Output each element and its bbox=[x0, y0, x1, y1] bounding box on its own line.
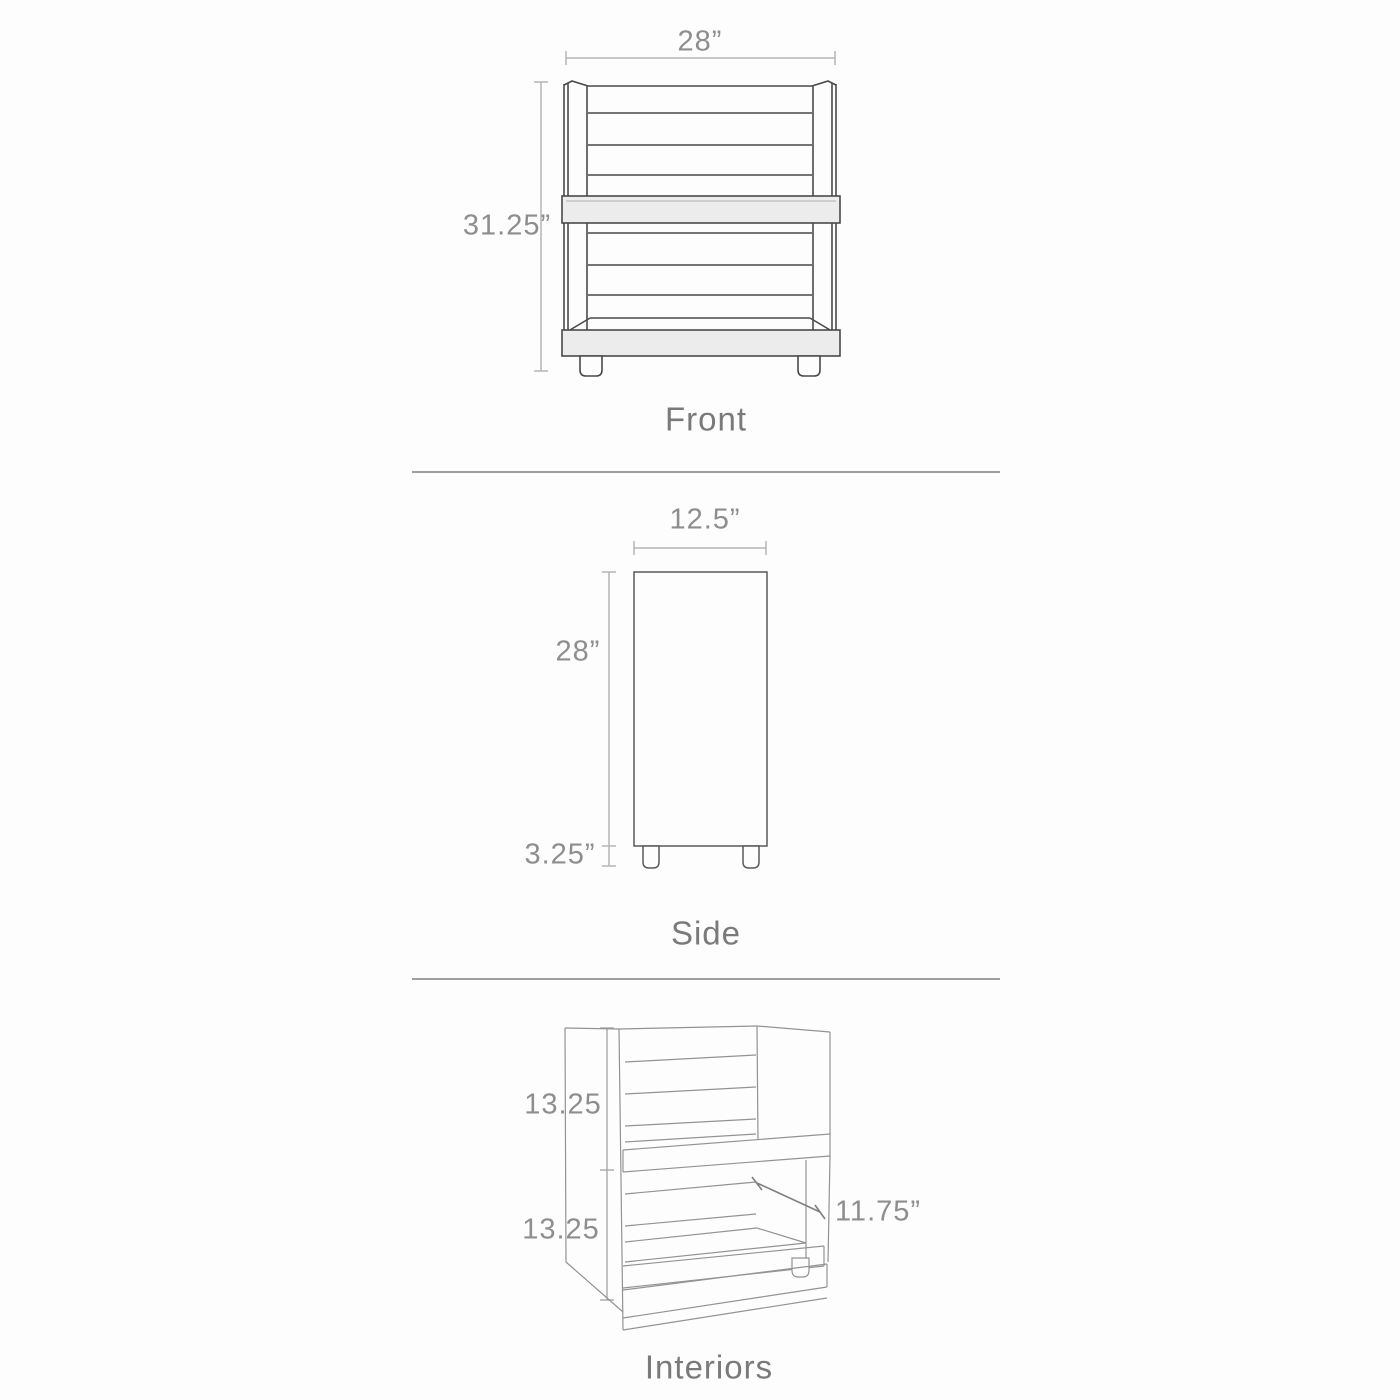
furniture-dimension-spec-sheet: 28” 31.25” Front 12.5” 28” 3.25” Side 13… bbox=[0, 0, 1400, 1400]
interiors-right-panel bbox=[619, 1026, 830, 1262]
interiors-lower-dimension-label: 13.25 bbox=[522, 1216, 600, 1245]
interiors-depth-dimension-line bbox=[752, 1177, 825, 1219]
side-width-dimension-line bbox=[634, 541, 766, 555]
interiors-left-panel bbox=[565, 1028, 623, 1330]
side-view-caption: Side bbox=[671, 917, 741, 950]
interiors-height-dimension-line bbox=[600, 1028, 614, 1300]
front-upper-shelf-rail bbox=[562, 196, 840, 223]
front-left-leg bbox=[580, 356, 602, 376]
interiors-depth-dimension-label: 11.75” bbox=[835, 1198, 921, 1227]
front-view-drawing bbox=[534, 51, 840, 376]
front-width-dimension-label: 28” bbox=[678, 28, 723, 57]
interiors-upper-slats bbox=[625, 1055, 756, 1142]
side-front-leg bbox=[643, 846, 659, 868]
side-height-dimension-label: 28” bbox=[556, 638, 601, 667]
side-height-dimension-line bbox=[602, 572, 616, 866]
side-back-leg bbox=[743, 846, 759, 868]
front-lower-slat-panel bbox=[570, 233, 830, 330]
line-art bbox=[0, 0, 1400, 1400]
side-panel-body bbox=[634, 572, 767, 846]
side-view-drawing bbox=[602, 541, 767, 868]
front-upper-slat-panel bbox=[588, 86, 812, 175]
front-view-caption: Front bbox=[665, 403, 747, 436]
front-height-dimension-label: 31.25” bbox=[463, 212, 551, 241]
interiors-view-caption: Interiors bbox=[645, 1351, 773, 1384]
interiors-upper-dimension-label: 13.25 bbox=[524, 1091, 602, 1120]
side-width-dimension-label: 12.5” bbox=[669, 506, 740, 535]
interiors-view-drawing bbox=[565, 1026, 830, 1330]
front-bottom-rail bbox=[562, 330, 840, 356]
interiors-lower-slats bbox=[625, 1160, 806, 1258]
front-right-leg bbox=[798, 356, 820, 376]
side-leg-height-dimension-label: 3.25” bbox=[524, 841, 595, 870]
